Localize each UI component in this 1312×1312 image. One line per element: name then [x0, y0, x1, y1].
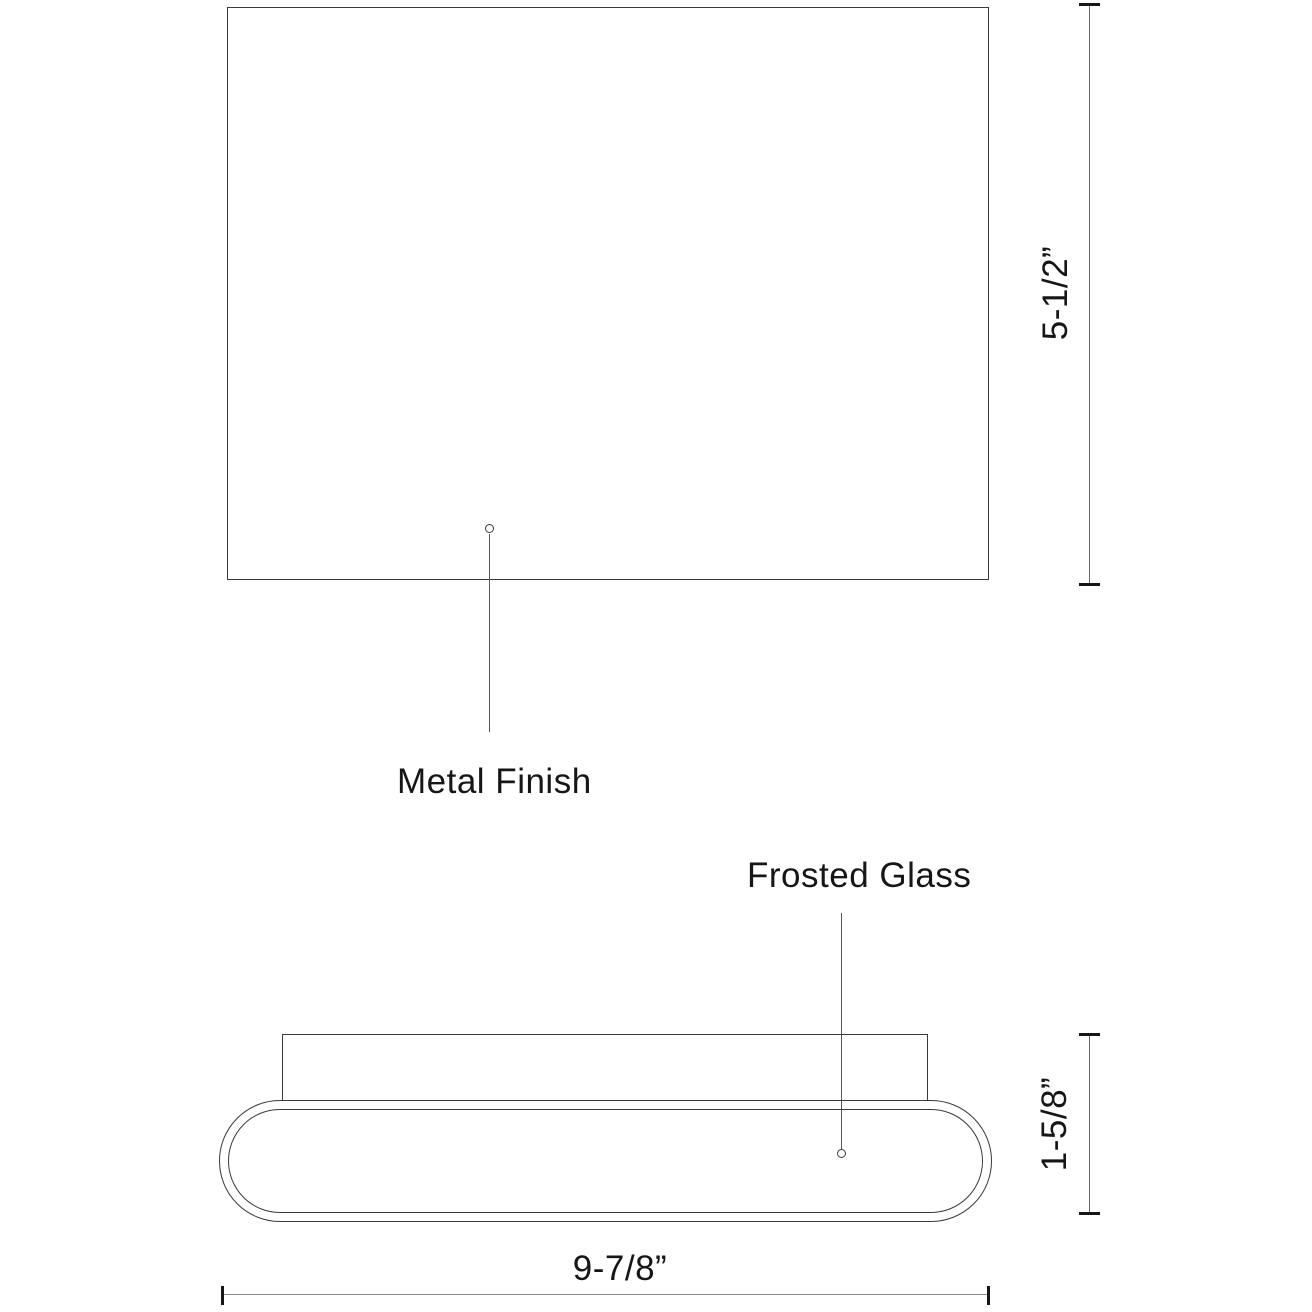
metal-finish-leader-line [489, 534, 490, 732]
backplate-outline [282, 1034, 928, 1101]
height-dimension-bottom-tick [1079, 583, 1100, 586]
width-dimension-left-tick [221, 1286, 224, 1305]
height-dimension-label: 5-1/2” [1036, 246, 1076, 340]
glass-inner-outline [228, 1109, 983, 1213]
depth-dimension-bottom-tick [1079, 1212, 1100, 1215]
metal-finish-callout-dot [485, 524, 494, 533]
depth-dimension-line [1089, 1035, 1090, 1214]
frosted-glass-label: Frosted Glass [747, 856, 971, 896]
width-dimension-right-tick [987, 1286, 990, 1305]
depth-dimension-label: 1-5/8” [1035, 1077, 1075, 1171]
height-dimension-top-tick [1079, 3, 1100, 6]
depth-dimension-top-tick [1079, 1033, 1100, 1036]
dimension-drawing-canvas: Metal Finish 5-1/2” Frosted Glass 1-5/8”… [0, 0, 1312, 1312]
width-dimension-label: 9-7/8” [573, 1249, 667, 1289]
metal-finish-label: Metal Finish [397, 762, 592, 802]
width-dimension-line [222, 1294, 989, 1295]
front-view-outline [227, 7, 989, 580]
height-dimension-line [1089, 5, 1090, 585]
